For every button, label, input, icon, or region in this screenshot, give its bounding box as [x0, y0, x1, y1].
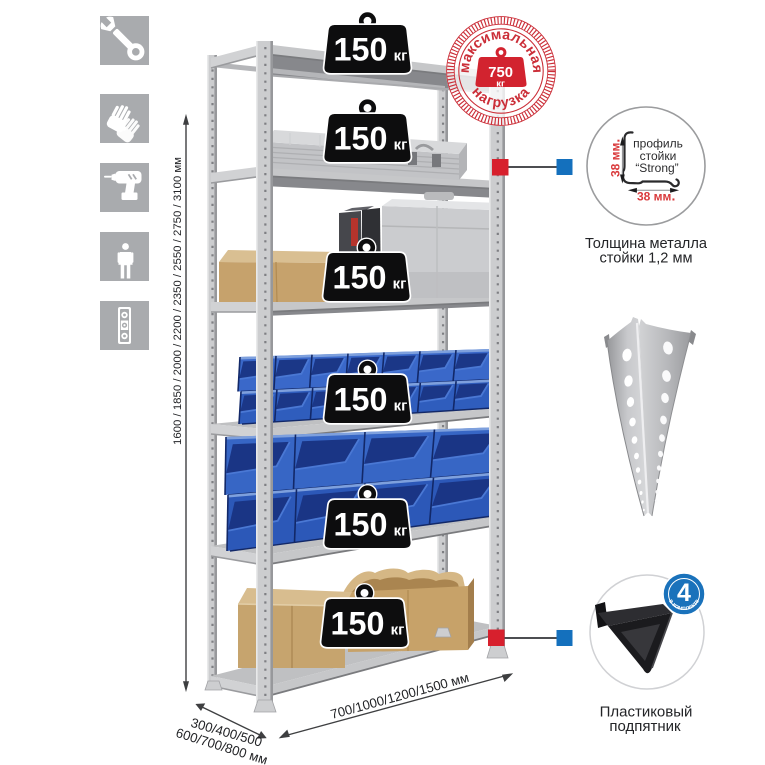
svg-text:150: 150 — [334, 381, 388, 417]
svg-text:кг: кг — [394, 136, 408, 153]
svg-text:кг: кг — [394, 522, 408, 539]
svg-text:700/1000/1200/1500 мм: 700/1000/1200/1500 мм — [329, 670, 471, 722]
svg-text:150: 150 — [333, 259, 387, 295]
svg-text:1600 / 1850 / 2000 / 2200 / 23: 1600 / 1850 / 2000 / 2200 / 2350 / 2550 … — [172, 157, 184, 445]
svg-text:кг: кг — [394, 397, 408, 414]
svg-text:38 мм.: 38 мм. — [637, 188, 675, 204]
svg-text:кг: кг — [391, 621, 405, 638]
svg-text:150: 150 — [334, 120, 388, 156]
svg-text:38 мм.: 38 мм. — [607, 139, 623, 177]
svg-text:150: 150 — [331, 605, 385, 641]
svg-text:подпятник: подпятник — [609, 718, 681, 735]
svg-text:кг: кг — [496, 79, 505, 90]
svg-text:150: 150 — [334, 31, 388, 67]
svg-text:“Strong”: “Strong” — [635, 161, 678, 175]
svg-text:стойки 1,2 мм: стойки 1,2 мм — [599, 251, 692, 267]
svg-text:150: 150 — [334, 506, 388, 542]
svg-text:кг: кг — [394, 47, 408, 64]
svg-text:кг: кг — [393, 275, 407, 292]
svg-text:4: 4 — [677, 579, 691, 607]
